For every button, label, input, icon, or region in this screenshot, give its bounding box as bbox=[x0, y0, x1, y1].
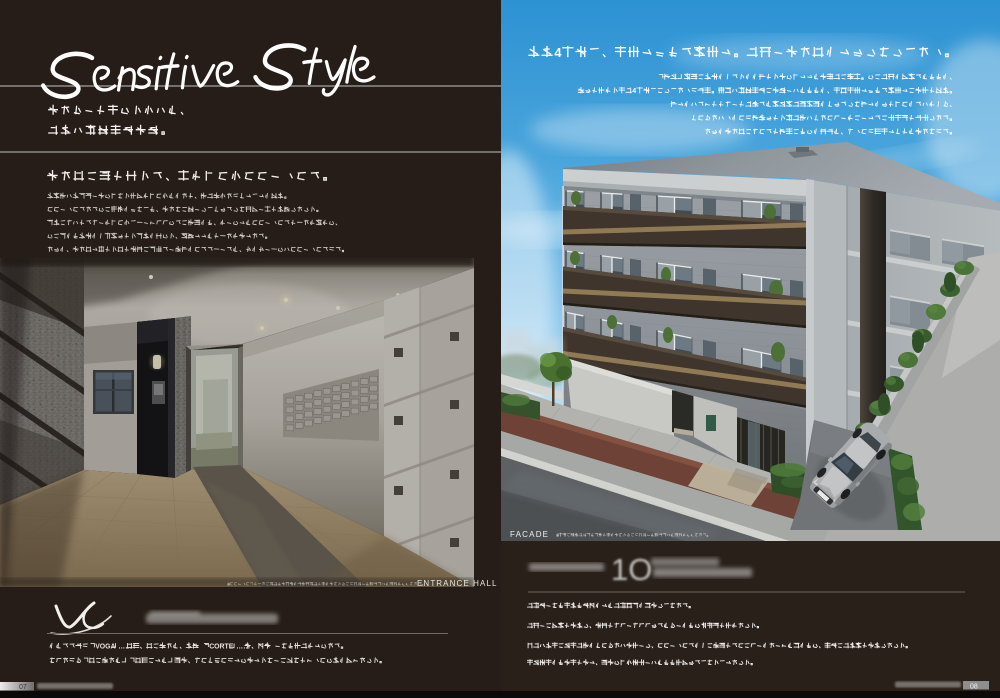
svg-text:VOGA: VOGA bbox=[95, 644, 115, 651]
svg-text:4: 4 bbox=[554, 45, 562, 60]
svg-text:※: ※ bbox=[556, 533, 560, 538]
svg-text:07: 07 bbox=[19, 684, 27, 691]
svg-text:ENTRANCE HALL: ENTRANCE HALL bbox=[417, 579, 498, 588]
svg-text:FACADE: FACADE bbox=[510, 530, 549, 539]
svg-text:4: 4 bbox=[632, 87, 636, 95]
svg-text:CORTE: CORTE bbox=[209, 644, 234, 651]
svg-text:08: 08 bbox=[970, 684, 978, 691]
svg-text:……: …… bbox=[118, 644, 132, 651]
svg-text:……: …… bbox=[236, 644, 250, 651]
svg-text:※: ※ bbox=[227, 582, 231, 587]
svg-text:1O: 1O bbox=[611, 552, 652, 587]
